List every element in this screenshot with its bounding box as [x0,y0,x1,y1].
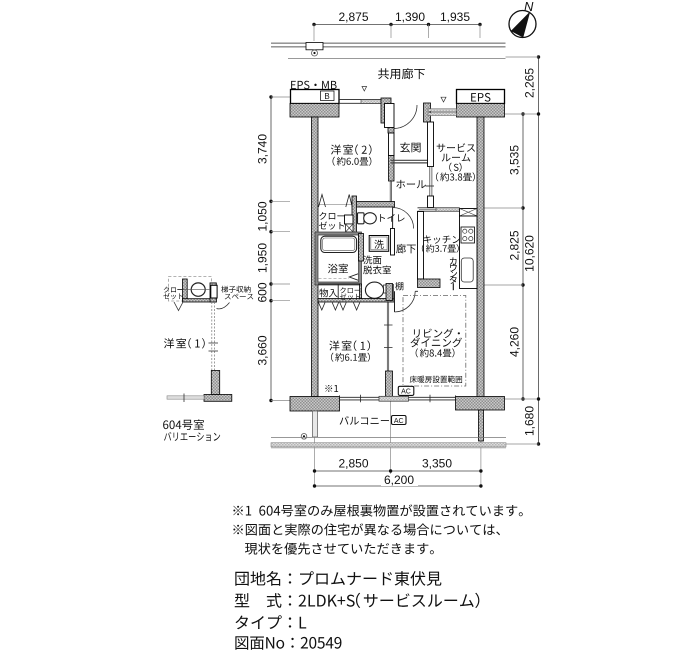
svg-text:1,935: 1,935 [440,10,470,24]
svg-text:1,950: 1,950 [256,243,270,273]
svg-text:1,050: 1,050 [256,201,270,231]
svg-text:N: N [524,0,534,14]
svg-text:6,200: 6,200 [384,473,414,487]
svg-text:4,260: 4,260 [508,327,522,357]
svg-text:2,825: 2,825 [508,230,522,260]
svg-text:3,740: 3,740 [256,134,270,164]
svg-text:AC: AC [394,418,404,425]
svg-text:3,350: 3,350 [422,457,452,471]
svg-text:2,875: 2,875 [338,10,368,24]
svg-text:3,660: 3,660 [256,335,270,365]
svg-text:10,620: 10,620 [523,235,537,272]
svg-text:2,265: 2,265 [523,68,537,98]
svg-text:2,850: 2,850 [338,457,368,471]
svg-text:1,390: 1,390 [395,10,425,24]
svg-text:1,680: 1,680 [523,406,537,436]
svg-text:3,535: 3,535 [508,145,522,175]
svg-text:B: B [324,92,329,101]
svg-text:AC: AC [401,389,411,396]
svg-text:600: 600 [256,282,270,302]
